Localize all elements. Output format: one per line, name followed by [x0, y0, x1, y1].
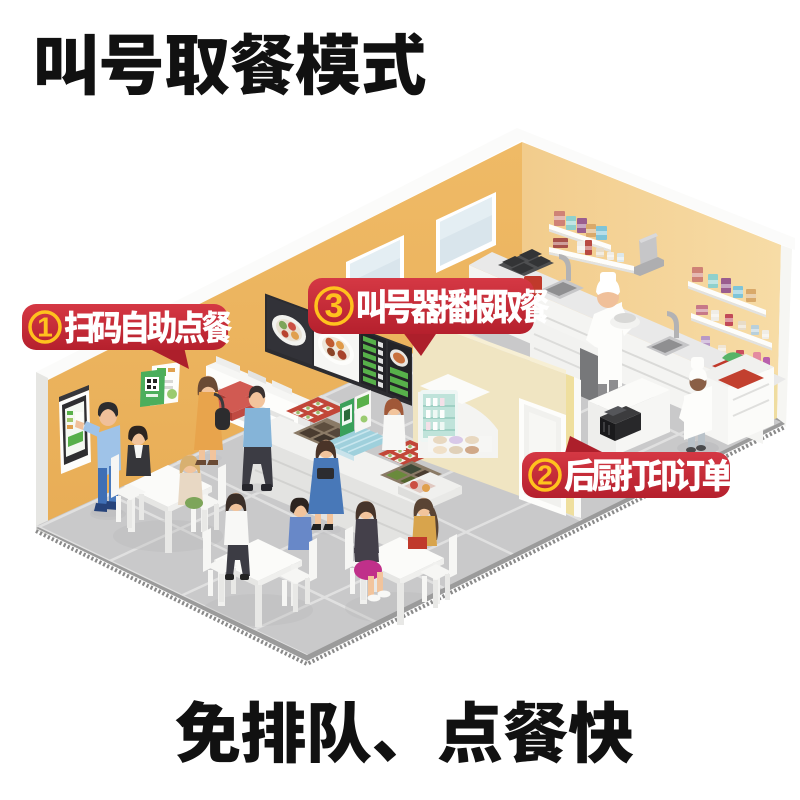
svg-text:1: 1 — [37, 311, 53, 342]
svg-text:3: 3 — [325, 287, 344, 325]
svg-text:2: 2 — [537, 459, 553, 490]
